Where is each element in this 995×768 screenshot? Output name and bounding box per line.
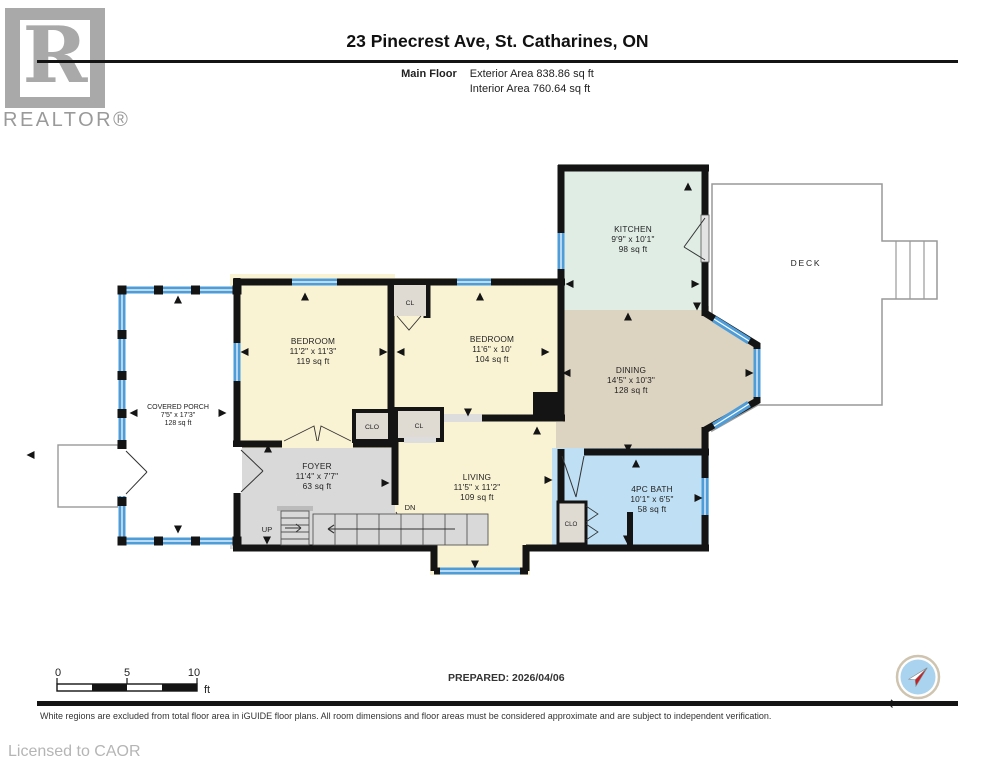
dining-name: DINING — [616, 365, 646, 375]
dining-dims: 14'5" x 10'3" — [607, 375, 655, 385]
closet-label: CL — [406, 300, 415, 307]
kitchen-area: 98 sq ft — [619, 244, 648, 254]
dining-area: 128 sq ft — [614, 385, 648, 395]
porch-name: COVERED PORCH — [147, 404, 209, 411]
kitchen-dims: 9'9" x 10'1" — [611, 234, 654, 244]
stairs-up-label: UP — [262, 525, 272, 534]
bedroom2-door-threshold — [443, 414, 482, 422]
scale-unit: ft — [204, 684, 210, 696]
bath-name: 4PC BATH — [631, 484, 673, 494]
bedroom1-dims: 11'2" x 11'3" — [290, 346, 337, 356]
porch-dims: 7'5" x 17'3" — [161, 412, 196, 419]
foyer-area: 63 sq ft — [303, 481, 332, 491]
closet-label: CL — [415, 423, 424, 430]
closet-label: CLO — [565, 521, 578, 528]
living-dims: 11'5" x 11'2" — [454, 482, 501, 492]
bedroom1-area: 119 sq ft — [296, 356, 330, 366]
disclaimer-text: White regions are excluded from total fl… — [40, 711, 771, 721]
bedroom2-name: BEDROOM — [470, 334, 514, 344]
footer-divider — [37, 701, 958, 706]
bedroom2-area: 104 sq ft — [475, 354, 509, 364]
kitchen-name: KITCHEN — [614, 224, 652, 234]
bedroom1-name: BEDROOM — [291, 336, 335, 346]
floor-plan-svg: DECK — [0, 0, 995, 768]
bath-dims: 10'1" x 6'5" — [630, 494, 673, 504]
porch-area: 128 sq ft — [165, 420, 192, 427]
deck-label: DECK — [791, 258, 822, 268]
entry-landing — [58, 445, 118, 507]
scale-tick-5: 5 — [124, 667, 130, 679]
license-text: Licensed to CAOR — [8, 743, 141, 761]
scale-bar: 0 5 10 ft — [55, 667, 210, 696]
scale-tick-10: 10 — [188, 667, 200, 679]
living-area: 109 sq ft — [460, 492, 494, 502]
bedroom2-dims: 11'6" x 10' — [472, 344, 512, 354]
stairs-down-label: DN — [405, 503, 416, 512]
foyer-name: FOYER — [302, 461, 332, 471]
bath-area: 58 sq ft — [638, 504, 667, 514]
prepared-date: PREPARED: 2026/04/06 — [448, 672, 565, 684]
floor-plan-page: R REALTOR® 23 Pinecrest Ave, St. Cathari… — [0, 0, 995, 768]
closet-label: CLO — [365, 424, 379, 431]
chimney — [533, 392, 559, 420]
foyer-dims: 11'4" x 7'7" — [296, 471, 339, 481]
living-name: LIVING — [463, 472, 491, 482]
scale-tick-0: 0 — [55, 667, 61, 679]
